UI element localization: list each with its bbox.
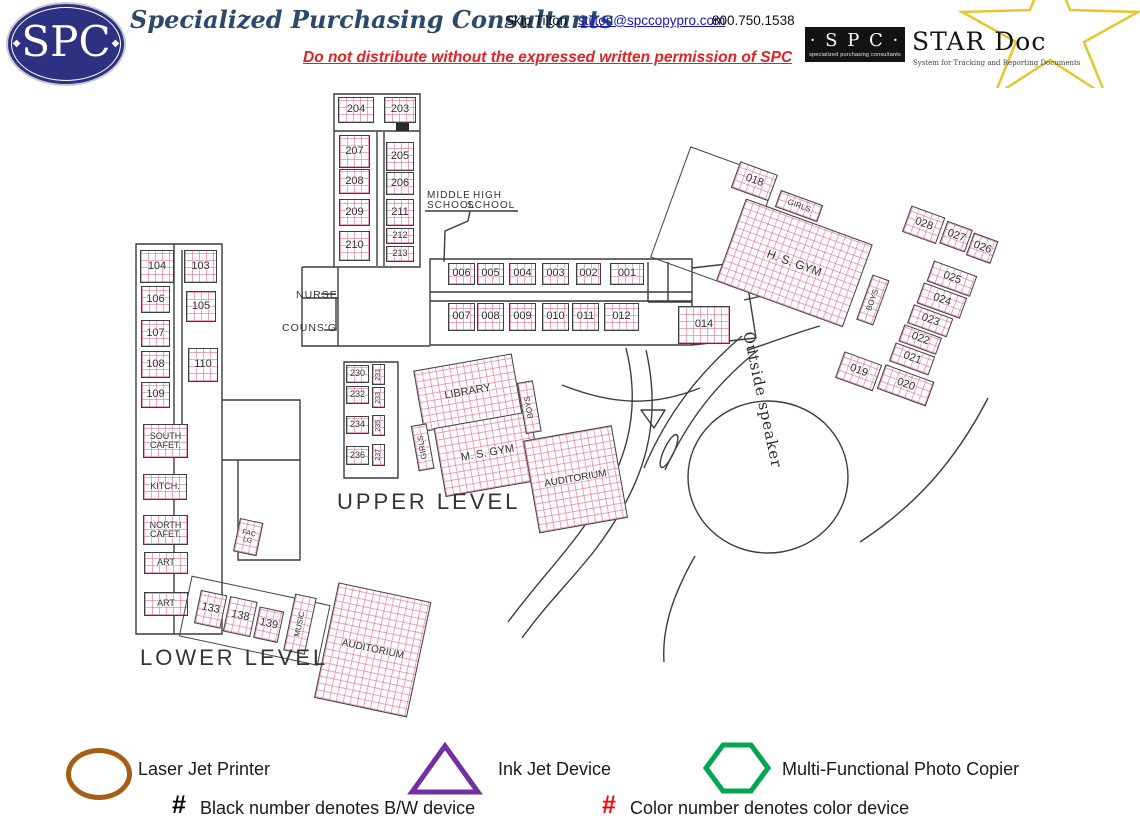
legend-laser-label: Laser Jet Printer <box>138 759 270 780</box>
black-number-note: Black number denotes B/W device <box>200 798 475 819</box>
map-label-school: SCHOOL <box>467 200 515 211</box>
floor-plan: 2042032072052082062092112102122130060050… <box>0 0 1140 828</box>
copier-hexagon-icon <box>702 741 772 796</box>
page: ◆ SPC ◆ Specialized Purchasing Consultan… <box>0 0 1140 828</box>
map-label-outside-speaker: Outside speaker <box>739 330 786 470</box>
map-labels-layer: NURSECOUNS'GMIDDLESCHOOLHIGHSCHOOLUPPER … <box>0 0 1140 828</box>
map-label-lower-level: LOWER LEVEL <box>140 645 328 671</box>
color-number-symbol: # <box>602 793 616 818</box>
black-number-symbol: # <box>172 793 186 818</box>
map-label-upper-level: UPPER LEVEL <box>337 489 520 515</box>
legend-copier-label: Multi-Functional Photo Copier <box>782 759 1019 780</box>
color-number-note: Color number denotes color device <box>630 798 909 819</box>
map-label-nurse: NURSE <box>296 289 338 301</box>
legend-inkjet-label: Ink Jet Device <box>498 759 611 780</box>
laser-jet-ellipse-icon <box>66 748 132 800</box>
ink-jet-triangle-icon <box>404 741 486 797</box>
map-label-couns-g: COUNS'G <box>282 322 337 334</box>
